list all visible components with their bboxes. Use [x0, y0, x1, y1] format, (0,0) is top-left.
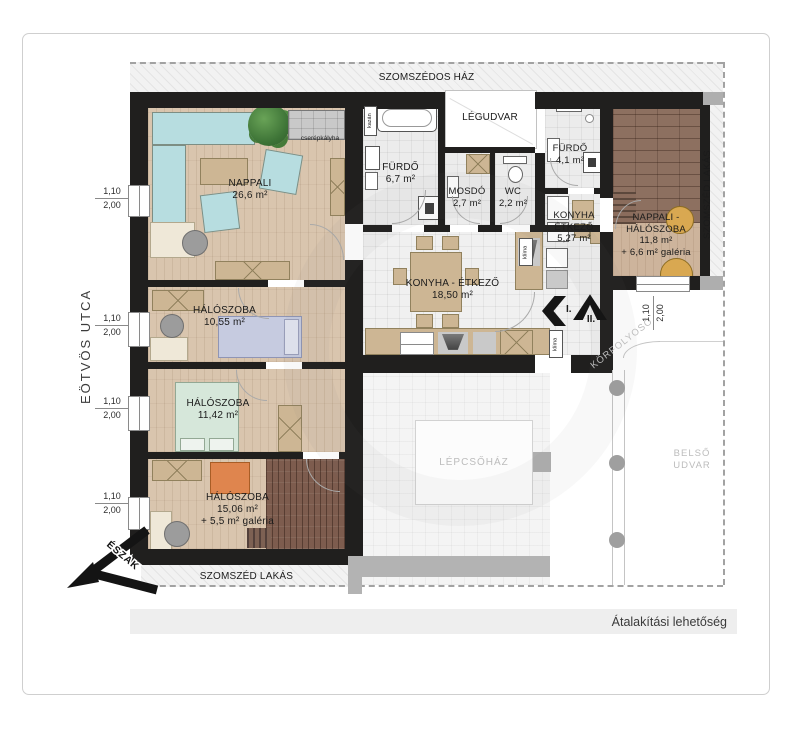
cabinet-icon: [330, 158, 345, 216]
room-area: 11,42 m²: [168, 410, 268, 422]
sofa-icon: [210, 462, 250, 494]
room-extra: + 5,5 m² galéria: [185, 516, 290, 528]
door-gap: [345, 224, 363, 260]
door-gap: [392, 225, 424, 232]
neighbor-top-text: SZOMSZÉDOS HÁZ: [379, 72, 475, 83]
pillow-icon: [180, 438, 205, 451]
room-name: BELSŐ: [652, 448, 732, 460]
room-area: 4,1 m²: [537, 155, 603, 167]
room-area: 2,2 m²: [482, 198, 544, 210]
courtyard-wall-band: [348, 556, 550, 577]
boundary-dashed-bottom: [130, 585, 723, 587]
wardrobe-icon: [278, 405, 302, 452]
chair-icon: [416, 236, 433, 250]
label-halo1: HÁLÓSZOBA 10,55 m²: [172, 305, 277, 329]
window: [636, 276, 690, 292]
label-nappali: NAPPALI 26,6 m²: [195, 178, 305, 202]
door-gap: [450, 225, 478, 232]
route-label-2: II.: [578, 314, 604, 325]
door-gap: [266, 362, 302, 369]
neighbor-wall-block: [703, 92, 723, 105]
neighbor-bottom-text: SZOMSZÉD LAKÁS: [200, 571, 293, 582]
label-halo3: HÁLÓSZOBA 15,06 m² + 5,5 m² galéria: [185, 492, 290, 529]
corridor-line: [612, 370, 625, 585]
room-name: NAPPALI: [195, 178, 305, 190]
desk-icon: [150, 337, 188, 361]
label-wc: WC 2,2 m²: [482, 186, 544, 209]
label-furdo-kis: FÜRDŐ 4,1 m²: [537, 143, 603, 166]
neighbor-wall-block: [700, 276, 723, 290]
annotation-cserepkalyha: cserépkályha: [293, 135, 347, 142]
label-konyha-nagy: KONYHA - ÉTKEZŐ 18,50 m²: [380, 278, 525, 302]
plant-icon: [248, 104, 290, 146]
wall: [148, 362, 345, 369]
door-gap: [502, 225, 530, 232]
room-area: 10,55 m²: [172, 317, 277, 329]
stove-icon: [438, 332, 468, 354]
neighbor-label-top: SZOMSZÉDOS HÁZ: [130, 72, 723, 84]
room-name: KONYHA: [542, 210, 606, 222]
room-area: 5,27 m²: [542, 233, 606, 245]
label-nappali-halo: NAPPALI - HÁLÓSZOBA 11,8 m² + 6,6 m² gal…: [606, 212, 706, 258]
door-gap: [303, 452, 339, 459]
room-area: 15,06 m²: [185, 504, 290, 516]
caption-bar: Átalakítási lehetőség: [130, 609, 737, 634]
column-icon: [609, 532, 625, 548]
street-label: EÖTVÖS UTCA: [78, 280, 100, 412]
room-name: WC: [482, 186, 544, 198]
wall: [345, 92, 363, 565]
fridge-icon: [400, 332, 434, 355]
wall: [148, 280, 345, 287]
toilet-icon: [503, 156, 527, 164]
chair-icon: [416, 314, 433, 328]
gallery-stairs-icon: [247, 528, 271, 548]
kitchen-unit-icon: [473, 332, 496, 354]
caption-text: Átalakítási lehetőség: [612, 615, 727, 629]
label-furdo-nagy: FÜRDŐ 6,7 m²: [368, 162, 433, 186]
north-arrow-icon: ÉSZAK: [55, 520, 173, 602]
room-name: KONYHA - ÉTKEZŐ: [380, 278, 525, 290]
room-area: 26,6 m²: [195, 190, 305, 202]
window-dimension: 1,102,00: [95, 186, 129, 212]
room-name: HÁLÓSZOBA: [172, 305, 277, 317]
label-lepcsohaz: LÉPCSŐHÁZ: [415, 457, 533, 469]
column-icon: [609, 455, 625, 471]
room-name: UDVAR: [652, 460, 732, 472]
room-area: 11,8 m²: [606, 235, 706, 247]
kazan-box: kazán: [364, 106, 377, 136]
elevator-block: [533, 452, 551, 472]
door-gap: [568, 188, 594, 194]
window-dimension: 1,102,00: [641, 296, 667, 330]
window-dimension: 1,102,00: [95, 491, 129, 517]
door-gap: [268, 280, 304, 287]
label-halo2: HÁLÓSZOBA 11,42 m²: [168, 398, 268, 422]
wall: [130, 92, 363, 108]
window-dimension: 1,102,00: [95, 313, 129, 339]
floor-plan-page: SZOMSZÉDOS HÁZ SZOMSZÉD LAKÁS SZOMSZÉD L…: [0, 0, 800, 732]
window-dimension: 1,102,00: [95, 396, 129, 422]
sofa-icon: [152, 112, 255, 145]
toilet-icon: [508, 166, 523, 183]
window: [128, 185, 150, 217]
sofa-icon: [152, 145, 186, 224]
drain-icon: [585, 114, 594, 123]
room-area: 6,7 m²: [368, 174, 433, 186]
cabinet-icon: [500, 330, 533, 355]
pillow-icon: [209, 438, 234, 451]
window: [128, 312, 150, 347]
room-name: ÉTKEZŐ: [542, 222, 606, 234]
room-name: HÁLÓSZOBA: [185, 492, 290, 504]
wall: [535, 92, 700, 109]
window: [128, 396, 150, 431]
room-name: HÁLÓSZOBA: [606, 224, 706, 236]
chair-icon: [442, 236, 459, 250]
room-area: 18,50 m²: [380, 290, 525, 302]
klima-box: klíma: [549, 330, 563, 358]
room-extra: + 6,6 m² galéria: [606, 247, 706, 259]
column-icon: [609, 380, 625, 396]
wall: [438, 109, 445, 232]
kitchen-unit-icon: [546, 270, 568, 289]
pillow-icon: [284, 319, 299, 355]
room-name: FÜRDŐ: [368, 162, 433, 174]
room-name: HÁLÓSZOBA: [168, 398, 268, 410]
courtyard-edge-line: [660, 341, 723, 342]
room-name: NAPPALI -: [606, 212, 706, 224]
room-name: FÜRDŐ: [537, 143, 603, 155]
wardrobe-icon: [152, 460, 202, 481]
desk-chair-icon: [182, 230, 208, 256]
kitchen-unit-icon: [546, 248, 568, 268]
cabinet-icon: [466, 154, 490, 174]
cabinet-icon: [215, 261, 290, 280]
label-legudvar: LÉGUDVAR: [447, 112, 533, 124]
label-belso-udvar: BELSŐ UDVAR: [652, 448, 732, 471]
klima-box: klíma: [519, 238, 533, 266]
label-konyha-kis: KONYHA ÉTKEZŐ 5,27 m²: [542, 210, 606, 245]
chair-icon: [442, 314, 459, 328]
wall: [345, 355, 613, 373]
